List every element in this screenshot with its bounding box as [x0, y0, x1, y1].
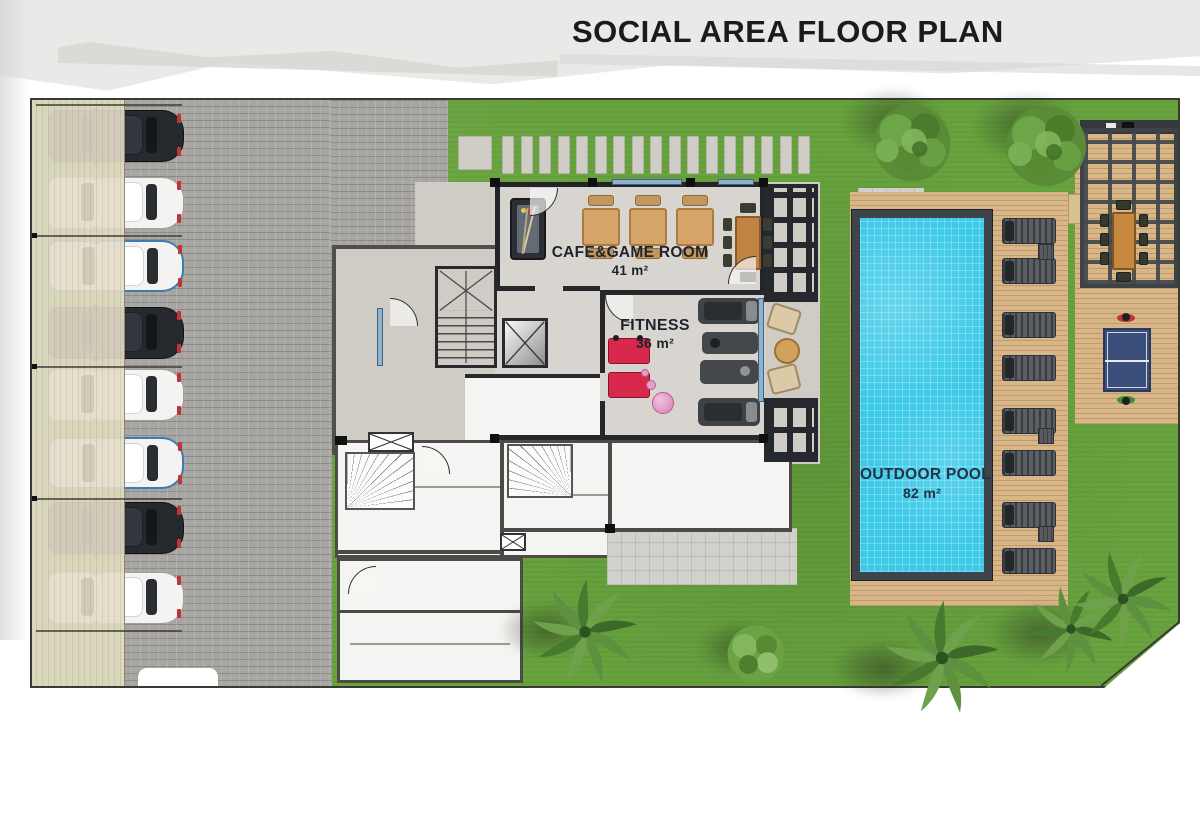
table-tennis-net — [1105, 360, 1149, 362]
patio — [607, 528, 797, 585]
window-cafe-north — [612, 179, 682, 185]
car-rear-window — [146, 376, 157, 412]
cafe-table — [582, 208, 620, 246]
stepping-stone — [595, 136, 607, 174]
bike-wheel — [740, 366, 750, 376]
outdoor-pool: OUTDOOR POOL 82 m² — [852, 210, 992, 580]
fitness-area: 36 m² — [590, 335, 720, 352]
car-taillight — [177, 506, 181, 515]
parking-bay-line — [36, 235, 182, 237]
cafe-table — [629, 208, 667, 246]
extension-inner-line — [350, 643, 510, 645]
dining-chair — [740, 203, 756, 213]
pool-label: OUTDOOR POOL 82 m² — [860, 466, 984, 501]
car-taillight — [178, 442, 182, 451]
parking-bay-line — [36, 104, 182, 106]
column-post — [490, 178, 500, 187]
cafe-room-area: 41 m² — [550, 263, 710, 279]
sun-lounger — [1002, 258, 1056, 284]
floor-plan-page: SOCIAL AREA FLOOR PLAN — [0, 0, 1200, 829]
stepping-stone — [521, 136, 533, 174]
player-head — [1122, 313, 1130, 321]
stepping-stone — [613, 136, 625, 174]
elevator-x — [505, 321, 545, 365]
stepping-stone — [780, 136, 792, 174]
pergola-trellis-north — [764, 184, 818, 302]
pergola-chair — [1116, 272, 1131, 282]
column-post — [605, 524, 615, 533]
stepping-stone — [669, 136, 681, 174]
stepping-stone — [502, 136, 514, 174]
paper-smudge-left — [0, 0, 28, 640]
site-plan: CAFE&GAME ROOM 41 m² — [30, 98, 1180, 688]
unit-wall — [337, 550, 500, 554]
exercise-ball-small — [646, 380, 656, 390]
exercise-ball — [652, 392, 674, 414]
parking-bay-line — [36, 366, 182, 368]
canopy-post — [32, 496, 37, 501]
lounger-pillow — [1005, 505, 1014, 525]
stepping-stone — [539, 136, 551, 174]
unit-staircase — [345, 452, 415, 510]
parking-bay-line — [36, 498, 182, 500]
dining-chair — [763, 236, 772, 249]
cafe-table — [676, 208, 714, 246]
sun-lounger — [1002, 355, 1056, 381]
elevator — [502, 318, 548, 368]
wall-cafe-south — [563, 286, 600, 291]
player-head — [1122, 397, 1130, 405]
stepping-stone — [706, 136, 718, 174]
dining-chair — [763, 218, 772, 231]
unit-inset — [465, 374, 600, 440]
carport-canopy — [30, 98, 125, 688]
pergola-chair — [1100, 233, 1109, 246]
pergola-chair — [1100, 252, 1109, 265]
cafe-room-name: CAFE&GAME ROOM — [550, 244, 710, 263]
car-taillight — [177, 214, 181, 223]
sun-lounger — [1002, 312, 1056, 338]
pergola-chair — [1116, 200, 1131, 210]
car-rear-window — [146, 509, 157, 545]
car-taillight — [177, 114, 181, 123]
wall-social-south — [495, 435, 765, 440]
car-taillight — [177, 344, 181, 353]
stepping-stone — [650, 136, 662, 174]
car-rear-window — [147, 248, 158, 284]
lounger-pillow — [1005, 315, 1014, 335]
treadmill-belt — [704, 403, 742, 421]
pergola-trellis-south — [764, 398, 818, 462]
pergola-chair — [1100, 214, 1109, 227]
stair-flight-lines — [438, 269, 494, 365]
stepping-stone-pad — [458, 136, 492, 170]
column-post — [335, 436, 347, 445]
parking-bay-line — [36, 630, 182, 632]
cafe-room-label: CAFE&GAME ROOM 41 m² — [550, 244, 710, 279]
stepping-stone — [632, 136, 644, 174]
shaft-x — [368, 432, 414, 452]
car-rear-window — [147, 445, 158, 481]
page-title: SOCIAL AREA FLOOR PLAN — [572, 14, 1004, 50]
exercise-bike — [700, 360, 758, 384]
sliding-door-fitness-east — [758, 298, 764, 402]
exercise-ball-small — [641, 369, 649, 377]
treadmill-console — [746, 301, 757, 321]
dining-chair — [723, 254, 732, 267]
sun-lounger — [1002, 548, 1056, 574]
treadmill — [698, 398, 760, 426]
stepping-stone — [576, 136, 588, 174]
stepping-stone — [743, 136, 755, 174]
fitness-name: FITNESS — [590, 316, 720, 335]
treadmill-console — [746, 402, 757, 422]
lounger-pillow — [1005, 551, 1014, 571]
column-post — [588, 178, 597, 187]
fitness-label: FITNESS 36 m² — [590, 316, 720, 352]
cafe-chair — [588, 195, 614, 206]
car-rear-window — [146, 314, 157, 350]
lounger-pillow — [1005, 261, 1014, 281]
car-taillight — [177, 609, 181, 618]
canopy-post — [32, 233, 37, 238]
car-taillight — [177, 406, 181, 415]
pool-area: 82 m² — [860, 485, 984, 502]
stepping-stone — [724, 136, 736, 174]
car-taillight — [178, 278, 182, 287]
lounger-pillow — [1005, 358, 1014, 378]
pergola-dining-table — [1112, 212, 1136, 270]
pergola-chair — [1139, 252, 1148, 265]
column-post — [490, 434, 499, 443]
cafe-chair — [682, 195, 708, 206]
car-taillight — [177, 181, 181, 190]
car-taillight — [177, 576, 181, 585]
canopy-post — [32, 364, 37, 369]
unit-wall — [504, 528, 792, 532]
window-cafe-north — [718, 179, 754, 185]
cafe-chair — [635, 195, 661, 206]
car-taillight — [177, 147, 181, 156]
dining-chair — [723, 218, 732, 231]
column-post — [759, 178, 768, 187]
car-taillight — [178, 475, 182, 484]
stepping-stone — [761, 136, 773, 174]
car-taillight — [177, 539, 181, 548]
site-border-right — [1178, 98, 1180, 625]
unit-wall — [608, 440, 612, 530]
shaft-x — [500, 533, 526, 551]
deck-side-table — [1038, 526, 1054, 542]
main-staircase — [435, 266, 497, 368]
deck-side-table — [1038, 244, 1054, 260]
player-green — [1117, 394, 1135, 408]
deck-side-table — [1038, 428, 1054, 444]
round-side-table — [774, 338, 800, 364]
car-rear-window — [146, 579, 157, 615]
player-red — [1117, 310, 1135, 324]
pergola-chair — [1139, 233, 1148, 246]
site-border-left — [30, 98, 32, 688]
pergola-chair — [1139, 214, 1148, 227]
lounger-pillow — [1005, 411, 1014, 431]
column-post — [686, 178, 695, 187]
stepping-stone — [558, 136, 570, 174]
extension-wall — [337, 610, 523, 613]
stepping-stone — [798, 136, 810, 174]
column-post — [759, 434, 768, 443]
entrance-pad — [415, 182, 495, 245]
car-taillight — [178, 245, 182, 254]
site-border-top — [30, 98, 1180, 100]
site-border-bottom — [30, 686, 1106, 688]
stepping-stone — [687, 136, 699, 174]
dining-chair — [723, 236, 732, 249]
car-taillight — [177, 373, 181, 382]
sun-lounger — [1002, 450, 1056, 476]
sun-lounger — [1002, 218, 1056, 244]
lounger-pillow — [1005, 221, 1014, 241]
car-rear-window — [146, 184, 157, 220]
table-tennis-table — [1103, 328, 1151, 392]
parking-entry-marking — [138, 668, 218, 686]
dining-chair — [763, 254, 772, 267]
door-terrace-west — [377, 308, 383, 366]
car-rear-window — [146, 117, 157, 153]
car-taillight — [177, 311, 181, 320]
wall-cafe-south — [495, 286, 535, 291]
pool-name: OUTDOOR POOL — [860, 466, 984, 485]
sun-lounger — [1002, 502, 1056, 528]
lounger-pillow — [1005, 453, 1014, 473]
unit-staircase — [507, 444, 573, 498]
